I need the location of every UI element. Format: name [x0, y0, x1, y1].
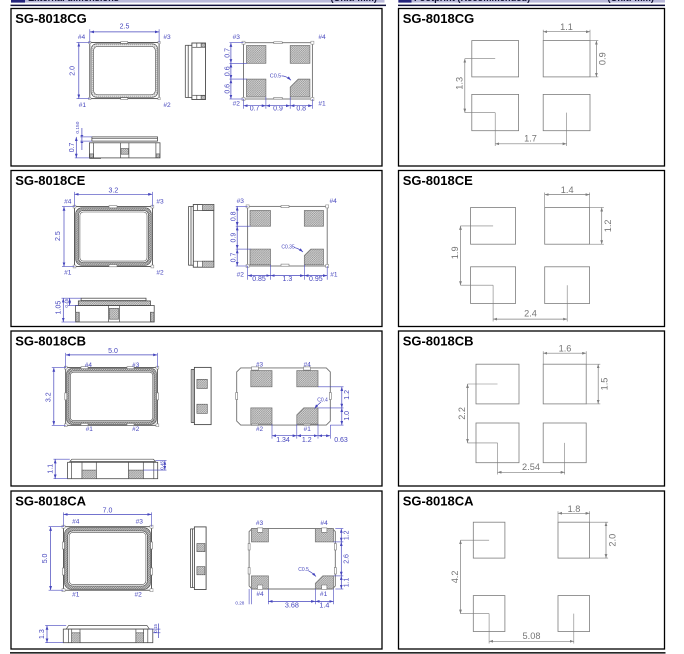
svg-text:2.2: 2.2 — [457, 407, 467, 420]
svg-text:5.0: 5.0 — [42, 553, 49, 563]
svg-text:1.2: 1.2 — [343, 530, 350, 540]
svg-text:Footprint (Recommended): Footprint (Recommended) — [414, 0, 530, 3]
svg-text:#2: #2 — [135, 592, 143, 599]
svg-text:#3: #3 — [132, 362, 140, 369]
svg-text:3.68: 3.68 — [285, 601, 299, 610]
svg-text:1.4: 1.4 — [561, 185, 574, 195]
svg-text:0.6: 0.6 — [224, 66, 231, 76]
svg-text:#4: #4 — [318, 34, 326, 41]
svg-text:#1: #1 — [318, 101, 326, 108]
svg-text:#3: #3 — [237, 198, 245, 205]
svg-text:1.8: 1.8 — [568, 504, 581, 514]
svg-text:0.7: 0.7 — [230, 253, 237, 263]
svg-text:1.3: 1.3 — [39, 629, 46, 639]
svg-text:0.6: 0.6 — [224, 84, 231, 94]
svg-text:0.28: 0.28 — [235, 600, 244, 605]
svg-text:#1: #1 — [64, 270, 72, 277]
svg-text:1.5: 1.5 — [600, 378, 610, 391]
svg-text:#4: #4 — [72, 518, 80, 525]
svg-text:0.8: 0.8 — [230, 211, 237, 221]
svg-text:#3: #3 — [136, 518, 144, 525]
svg-text:2.6: 2.6 — [343, 554, 350, 564]
svg-text:#1: #1 — [320, 591, 328, 598]
svg-text:0.7: 0.7 — [69, 142, 76, 152]
svg-text:#3: #3 — [156, 199, 164, 206]
svg-text:0.150: 0.150 — [75, 121, 81, 133]
svg-text:#4: #4 — [78, 34, 86, 41]
svg-text:#4: #4 — [64, 199, 72, 206]
svg-text:#2: #2 — [233, 101, 241, 108]
svg-text:0.85: 0.85 — [252, 276, 266, 283]
svg-text:1.2: 1.2 — [603, 220, 613, 233]
svg-text:1.3: 1.3 — [454, 77, 464, 90]
svg-text:#1: #1 — [79, 102, 87, 109]
svg-text:SG-8018CB: SG-8018CB — [403, 334, 474, 349]
svg-text:3.2: 3.2 — [109, 187, 119, 194]
svg-text:0.45: 0.45 — [64, 298, 69, 307]
svg-text:External dimensions: External dimensions — [28, 0, 119, 3]
svg-text:1.1: 1.1 — [48, 464, 55, 474]
svg-text:1.2: 1.2 — [302, 437, 312, 444]
svg-text:2.0: 2.0 — [70, 66, 77, 76]
svg-text:2.54: 2.54 — [522, 462, 540, 472]
svg-text:0.9: 0.9 — [597, 52, 607, 65]
svg-text:#3: #3 — [163, 34, 171, 41]
svg-text:0.63: 0.63 — [334, 437, 348, 444]
svg-text:1.05: 1.05 — [55, 301, 62, 315]
svg-text:1.6: 1.6 — [559, 344, 572, 354]
svg-text:1.34: 1.34 — [276, 437, 290, 444]
svg-text:3.2: 3.2 — [45, 392, 52, 402]
svg-text:2.0: 2.0 — [607, 534, 617, 547]
svg-text:0.7: 0.7 — [250, 106, 260, 113]
svg-text:SG-8018CA: SG-8018CA — [15, 494, 86, 509]
svg-text:#3: #3 — [256, 520, 264, 527]
svg-text:(Unit: mm): (Unit: mm) — [608, 0, 654, 3]
svg-text:SG-8018CG: SG-8018CG — [15, 11, 87, 26]
svg-text:#4: #4 — [320, 520, 328, 527]
svg-text:0.95: 0.95 — [309, 276, 323, 283]
svg-text:(Unit: mm): (Unit: mm) — [331, 0, 377, 3]
svg-text:1.1: 1.1 — [343, 577, 350, 587]
svg-text:#2: #2 — [256, 426, 264, 433]
svg-text:#4: #4 — [256, 591, 264, 598]
svg-text:0.8: 0.8 — [296, 106, 306, 113]
svg-text:#4: #4 — [304, 361, 312, 368]
svg-text:#4: #4 — [85, 362, 93, 369]
svg-text:1.7: 1.7 — [524, 133, 537, 143]
svg-text:#1: #1 — [304, 426, 312, 433]
svg-text:0.15: 0.15 — [153, 623, 158, 632]
svg-text:0.9: 0.9 — [273, 106, 283, 113]
svg-text:4.2: 4.2 — [450, 571, 460, 584]
svg-text:#4: #4 — [330, 198, 338, 205]
svg-text:5.0: 5.0 — [108, 348, 118, 355]
svg-text:#2: #2 — [237, 271, 245, 278]
svg-text:SG-8018CE: SG-8018CE — [15, 173, 85, 188]
svg-text:1.0: 1.0 — [344, 411, 351, 421]
svg-text:1.1: 1.1 — [560, 22, 573, 32]
svg-text:#2: #2 — [163, 102, 171, 109]
svg-text:2.5: 2.5 — [120, 23, 130, 30]
svg-text:0.45: 0.45 — [159, 460, 164, 469]
svg-text:5.08: 5.08 — [523, 631, 541, 641]
svg-text:#1: #1 — [72, 592, 80, 599]
svg-text:C0.35: C0.35 — [281, 244, 295, 250]
svg-text:#3: #3 — [233, 34, 241, 41]
svg-text:#1: #1 — [330, 271, 338, 278]
svg-text:1.3: 1.3 — [283, 276, 293, 283]
svg-text:SG-8018CE: SG-8018CE — [403, 173, 473, 188]
svg-text:SG-8018CA: SG-8018CA — [403, 494, 474, 509]
svg-text:1.9: 1.9 — [450, 246, 460, 259]
svg-text:7.0: 7.0 — [103, 508, 113, 515]
svg-text:#2: #2 — [132, 426, 140, 433]
svg-text:C0.5: C0.5 — [270, 74, 281, 80]
svg-text:SG-8018CG: SG-8018CG — [403, 11, 475, 26]
svg-text:0.9: 0.9 — [230, 233, 237, 243]
svg-text:1.4: 1.4 — [319, 601, 329, 610]
svg-text:#2: #2 — [156, 270, 164, 277]
svg-text:SG-8018CB: SG-8018CB — [15, 334, 86, 349]
svg-text:0.7: 0.7 — [224, 48, 231, 58]
svg-text:2.4: 2.4 — [524, 309, 537, 319]
svg-text:2.5: 2.5 — [55, 231, 62, 241]
svg-text:1.2: 1.2 — [344, 390, 351, 400]
svg-text:C0.5: C0.5 — [298, 567, 309, 573]
svg-text:C0.4: C0.4 — [317, 398, 328, 404]
svg-text:#1: #1 — [86, 426, 94, 433]
svg-text:#3: #3 — [256, 361, 264, 368]
